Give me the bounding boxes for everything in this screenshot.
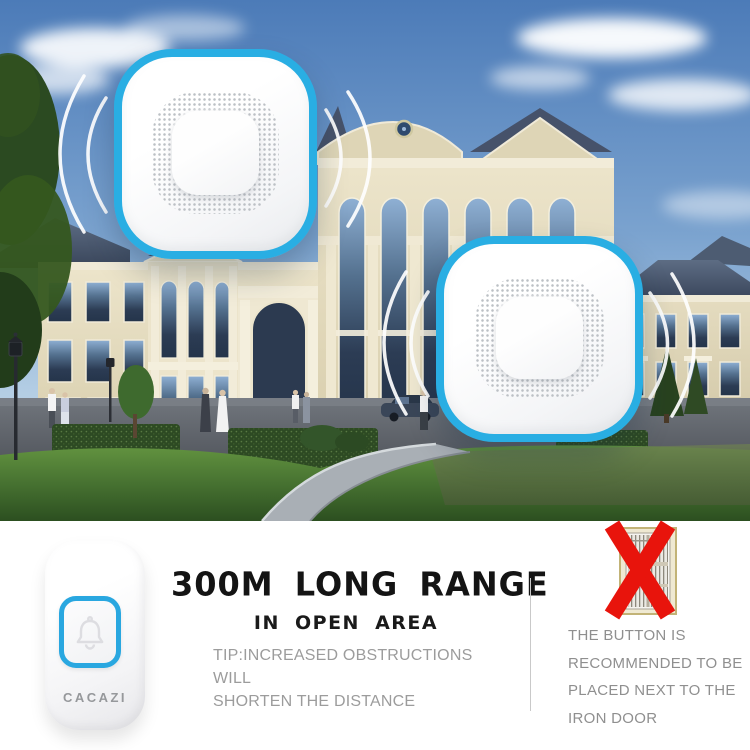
mansion-scene xyxy=(0,0,750,521)
warning-line-2: RECOMMENDED TO BE xyxy=(568,650,750,678)
receiver-front-panel xyxy=(172,111,258,194)
warning-line-3: PLACED NEXT TO THE xyxy=(568,677,750,705)
range-subtitle: IN OPEN AREA xyxy=(171,612,521,634)
red-cross-icon xyxy=(600,517,680,623)
info-band: CACAZI 300M LONG RANGE IN OPEN AREA TIP:… xyxy=(0,521,750,750)
hero-photo xyxy=(0,0,750,521)
brand-label: CACAZI xyxy=(45,690,145,705)
doorbell-push-button: CACAZI xyxy=(45,540,145,730)
bell-icon xyxy=(70,612,110,652)
range-block: 300M LONG RANGE IN OPEN AREA xyxy=(171,565,521,634)
range-title: 300M LONG RANGE xyxy=(171,564,521,604)
doorbell-receiver-1 xyxy=(114,49,317,259)
warning-line-1: THE BUTTON IS xyxy=(568,622,750,650)
product-ad-page: CACAZI 300M LONG RANGE IN OPEN AREA TIP:… xyxy=(0,0,750,750)
receiver-front-panel xyxy=(496,297,584,379)
range-tip-line-1: TIP:INCREASED OBSTRUCTIONS WILL xyxy=(213,644,503,690)
warning-text: THE BUTTON IS RECOMMENDED TO BE PLACED N… xyxy=(568,622,750,732)
warning-line-4: IRON DOOR xyxy=(568,705,750,733)
bell-button xyxy=(59,596,121,668)
range-tip-line-2: SHORTEN THE DISTANCE xyxy=(213,690,503,713)
range-tip: TIP:INCREASED OBSTRUCTIONS WILL SHORTEN … xyxy=(213,644,503,713)
section-divider xyxy=(530,578,531,711)
doorbell-receiver-2 xyxy=(436,236,643,442)
